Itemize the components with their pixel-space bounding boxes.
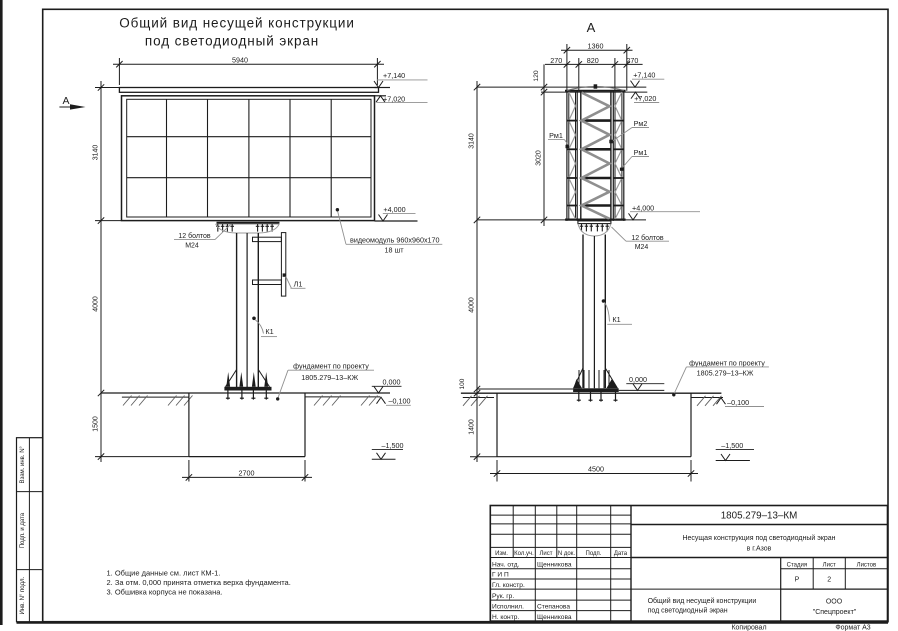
svg-text:4500: 4500 — [588, 465, 604, 474]
svg-text:+7,020: +7,020 — [383, 94, 405, 103]
svg-text:фундамент по проекту: фундамент по проекту — [689, 358, 765, 367]
svg-text:Рук. гр.: Рук. гр. — [492, 593, 514, 600]
svg-text:Рм1: Рм1 — [549, 131, 563, 140]
svg-text:Несущая конструкция под светод: Несущая конструкция под светодиодный экр… — [682, 534, 835, 542]
svg-text:под светодиодный экран: под светодиодный экран — [145, 34, 319, 49]
svg-text:Подп.: Подп. — [586, 551, 602, 557]
svg-text:–0,100: –0,100 — [389, 397, 411, 406]
svg-text:под светодиодный экран: под светодиодный экран — [648, 607, 728, 615]
svg-text:Стадия: Стадия — [787, 562, 807, 568]
svg-text:Исполнил.: Исполнил. — [492, 603, 524, 610]
svg-text:Рм1: Рм1 — [634, 148, 648, 157]
svg-text:Г И П: Г И П — [492, 572, 509, 579]
svg-text:2: 2 — [827, 577, 831, 584]
svg-text:Общий вид несущей конструкции: Общий вид несущей конструкции — [119, 16, 355, 31]
svg-text:Лист: Лист — [539, 551, 552, 557]
svg-text:Л1: Л1 — [294, 280, 303, 289]
svg-text:820: 820 — [587, 56, 599, 65]
svg-text:Общий вид несущей конструкции: Общий вид несущей конструкции — [648, 597, 757, 605]
svg-text:Взам. инв. N°: Взам. инв. N° — [20, 445, 26, 483]
svg-text:2700: 2700 — [239, 469, 255, 478]
svg-text:1805.279–13–КМ: 1805.279–13–КМ — [721, 511, 798, 522]
svg-text:Щенникова: Щенникова — [537, 561, 572, 568]
svg-text:"Спецпроект": "Спецпроект" — [813, 609, 857, 616]
svg-text:120: 120 — [533, 70, 540, 82]
svg-text:ООО: ООО — [826, 598, 843, 605]
svg-text:270: 270 — [626, 56, 638, 65]
svg-text:0,000: 0,000 — [383, 378, 401, 387]
svg-text:5940: 5940 — [232, 56, 248, 65]
svg-text:100: 100 — [459, 378, 466, 389]
svg-text:фундамент по проекту: фундамент по проекту — [293, 361, 369, 370]
svg-text:–0,100: –0,100 — [727, 398, 749, 407]
svg-text:3140: 3140 — [93, 145, 100, 161]
svg-text:Рм2: Рм2 — [634, 119, 648, 128]
svg-text:+4,000: +4,000 — [383, 205, 405, 214]
svg-text:+4,000: +4,000 — [632, 203, 654, 212]
svg-text:Дата: Дата — [614, 551, 628, 557]
svg-text:Щенникова: Щенникова — [537, 614, 572, 621]
svg-text:0,000: 0,000 — [629, 375, 647, 384]
svg-text:Гл. констр.: Гл. констр. — [492, 582, 525, 589]
svg-text:в г.Азов: в г.Азов — [747, 546, 772, 553]
svg-text:Лист: Лист — [823, 562, 836, 568]
svg-text:270: 270 — [550, 56, 562, 65]
svg-text:видеомодуль 960х960х170: видеомодуль 960х960х170 — [350, 235, 440, 244]
svg-text:Инв. N° подл.: Инв. N° подл. — [20, 577, 26, 615]
svg-text:Степанова: Степанова — [537, 603, 570, 610]
svg-text:12 болтов: 12 болтов — [631, 234, 664, 242]
svg-text:+7,140: +7,140 — [633, 71, 655, 80]
svg-text:3140: 3140 — [469, 133, 476, 149]
svg-text:2. За отм. 0,000 принята отмет: 2. За отм. 0,000 принята отметка верха ф… — [107, 578, 291, 587]
svg-text:Нач. отд.: Нач. отд. — [492, 561, 520, 568]
svg-text:–1,500: –1,500 — [382, 441, 404, 450]
svg-text:N док.: N док. — [558, 551, 575, 557]
svg-text:Изм.: Изм. — [495, 551, 508, 557]
svg-text:М24: М24 — [635, 244, 649, 251]
svg-text:Листов: Листов — [857, 562, 877, 568]
svg-text:К1: К1 — [265, 327, 273, 336]
svg-text:Подп. и дата: Подп. и дата — [20, 512, 26, 548]
svg-text:12 болтов: 12 болтов — [178, 232, 211, 240]
svg-text:А: А — [587, 20, 596, 35]
svg-text:3. Обшивка корпуса не показана: 3. Обшивка корпуса не показана. — [107, 587, 223, 596]
svg-text:+7,020: +7,020 — [634, 94, 656, 103]
svg-text:1400: 1400 — [469, 419, 476, 435]
svg-text:М24: М24 — [185, 243, 199, 250]
svg-text:К1: К1 — [612, 315, 620, 324]
svg-text:Н. контр.: Н. контр. — [492, 614, 519, 621]
svg-text:Р: Р — [795, 577, 800, 584]
svg-text:Формат А3: Формат А3 — [835, 625, 870, 631]
svg-text:1. Общие данные см. лист КМ-1.: 1. Общие данные см. лист КМ-1. — [107, 569, 221, 578]
svg-text:А: А — [62, 95, 69, 107]
svg-text:–1,500: –1,500 — [721, 441, 743, 450]
svg-text:Кол.уч.: Кол.уч. — [514, 551, 534, 557]
svg-text:+7,140: +7,140 — [383, 71, 405, 80]
svg-text:1805.279–13–КЖ: 1805.279–13–КЖ — [697, 368, 754, 377]
svg-text:1360: 1360 — [588, 42, 604, 51]
svg-text:1805.279–13–КЖ: 1805.279–13–КЖ — [301, 373, 358, 382]
svg-text:3020: 3020 — [536, 150, 543, 166]
svg-text:18 шт: 18 шт — [384, 246, 404, 255]
svg-text:4000: 4000 — [93, 296, 100, 312]
svg-text:1500: 1500 — [93, 416, 100, 432]
svg-text:4000: 4000 — [469, 297, 476, 313]
svg-text:Копировал: Копировал — [731, 625, 766, 631]
